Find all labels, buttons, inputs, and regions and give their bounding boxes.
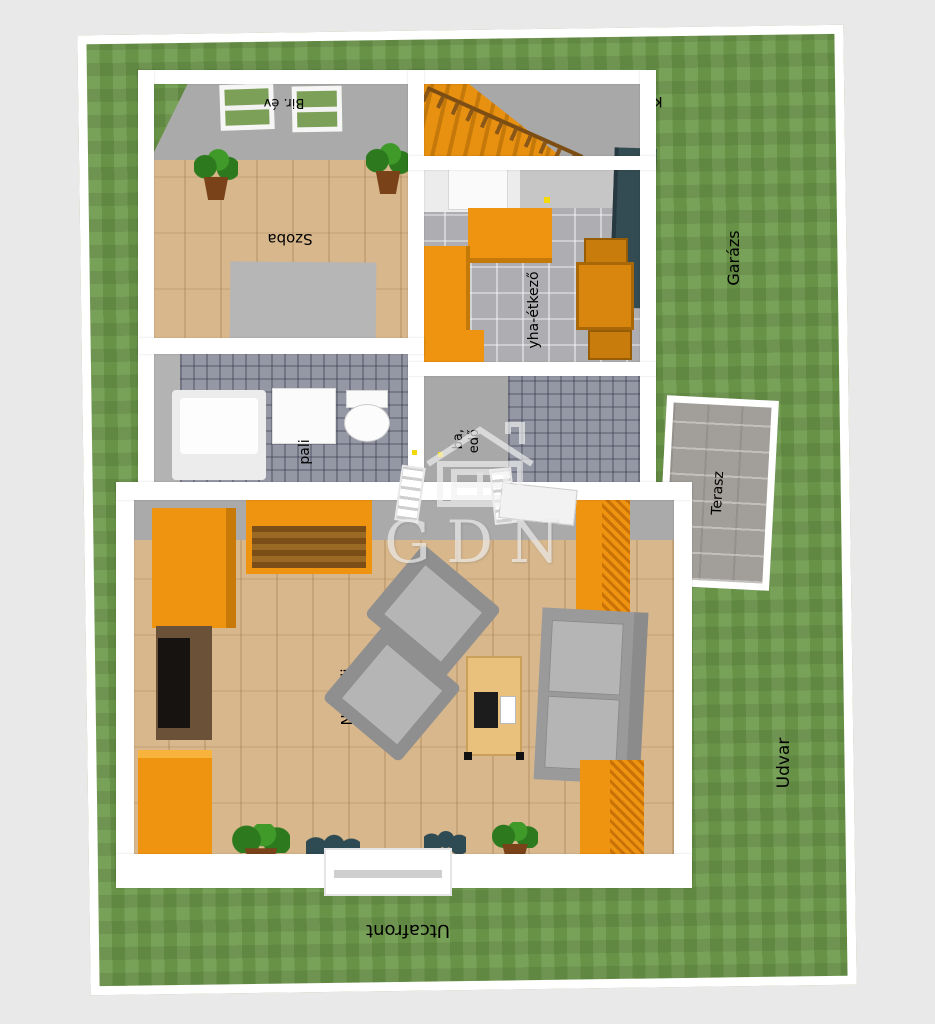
hallway-label-fragment: ba, edő <box>451 429 485 473</box>
paper-sheet <box>500 696 516 724</box>
wall-left-upper <box>138 70 154 494</box>
floor-plan-page: Ke Garázs Udvar Utcafront Terasz Bir. év <box>0 0 935 1024</box>
cabinet-top-right <box>576 496 630 616</box>
potted-plant <box>194 148 238 200</box>
hallway-label-line2: edő <box>467 429 483 473</box>
sofa <box>534 607 649 784</box>
wall-left-lower <box>116 486 134 882</box>
dining-table <box>576 262 634 330</box>
bathroom-label-text: pali <box>297 439 313 464</box>
plant-pot <box>204 177 229 200</box>
coffee-table-desk <box>466 656 522 756</box>
front-window-bay <box>324 848 452 896</box>
hallway-label-line1: ba, <box>451 429 467 473</box>
table-leg <box>464 752 472 760</box>
wall-right-lower <box>674 486 692 882</box>
yard-label-text: Udvar <box>774 738 794 789</box>
door-handle-dot <box>438 452 443 457</box>
wall-bedroom-bathroom <box>138 338 424 354</box>
yard-label: Udvar <box>773 723 795 803</box>
bedroom-label-text: Szoba <box>267 230 312 248</box>
window-text-fragment: Bir. év <box>224 94 344 112</box>
wall-kitchen-hallway <box>408 362 656 376</box>
toilet <box>344 390 388 442</box>
door-handle-dot <box>544 197 550 203</box>
cabinet-bottom-right <box>580 760 644 862</box>
garage-label-text: Garázs <box>724 230 743 285</box>
tv-device <box>474 692 498 728</box>
fridge <box>448 166 508 210</box>
bathtub <box>172 390 266 480</box>
cabinet-texture <box>602 496 630 616</box>
wall-top <box>138 70 656 84</box>
kitchen-dining-label-text: yha-étkező <box>526 271 542 348</box>
toilet-bowl <box>344 404 390 442</box>
dining-chair <box>584 238 628 264</box>
front-window-glass <box>334 870 442 878</box>
table-leg <box>516 752 524 760</box>
tv-cabinet <box>156 626 212 740</box>
cabinet-texture <box>610 760 644 862</box>
street-front-label: Utcafront <box>333 918 483 944</box>
bedroom-label: Szoba <box>240 228 340 250</box>
wall-right-upper <box>640 70 656 494</box>
dresser-shelves <box>252 526 366 568</box>
kitchen-island <box>468 208 552 263</box>
bathtub-basin <box>180 398 258 454</box>
door-handle-dot <box>412 450 417 455</box>
cabinet-top-left <box>152 508 236 628</box>
dining-chair <box>588 330 632 360</box>
bookshelf-dresser <box>246 496 372 574</box>
sofa-cushion <box>548 620 624 696</box>
terrace-label-text: Terasz <box>709 471 727 516</box>
plant-pot <box>376 171 401 194</box>
window-text: Bir. év <box>264 96 305 111</box>
garage-label: Garázs <box>722 213 744 303</box>
hallway-tiled-part <box>508 374 650 486</box>
potted-plant <box>366 142 410 194</box>
wall-stairs-kitchen <box>408 156 656 170</box>
kitchen-dining-label: yha-étkező <box>523 260 545 360</box>
cabinet-bottom-left <box>138 750 212 862</box>
tv-screen <box>158 638 190 728</box>
wall-divider-vertical <box>408 70 424 490</box>
bathroom-label-fragment: pali <box>294 425 316 479</box>
street-front-label-text: Utcafront <box>366 921 450 942</box>
